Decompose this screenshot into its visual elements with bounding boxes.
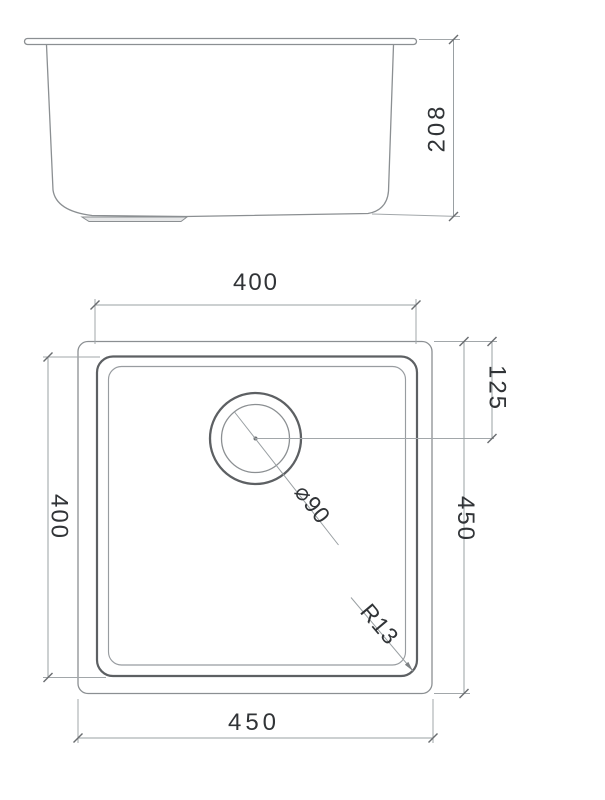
drain-offset-dimension: 125	[483, 337, 510, 443]
drain-offset-dimension-label: 125	[483, 365, 510, 411]
side-view: 208	[25, 35, 461, 222]
drain-diameter-label: ⌀90	[289, 479, 336, 528]
corner-radius-callout: R13	[351, 598, 413, 672]
plan-view: ⌀90 R13 400	[43, 269, 510, 743]
drain-diameter-leader	[235, 412, 339, 545]
corner-radius-label: R13	[355, 599, 404, 650]
rim-profile	[25, 39, 417, 45]
sink-dimension-drawing: 208 ⌀90 R13	[0, 0, 605, 800]
drain: ⌀90	[210, 393, 494, 545]
height-dimension: 208	[372, 35, 460, 221]
height-dim-extension-bottom	[372, 214, 460, 217]
overall-depth-dimension-label: 450	[452, 496, 479, 542]
bowl-width-dimension: 400	[91, 269, 421, 344]
bowl-width-dimension-label: 400	[233, 269, 279, 296]
overall-width-dimension-label: 450	[228, 709, 280, 736]
overall-width-dimension: 450	[74, 699, 438, 743]
basin-profile	[47, 45, 394, 217]
drain-pad-profile	[82, 217, 187, 222]
height-dimension-label: 208	[424, 103, 451, 152]
technical-drawing-page: 208 ⌀90 R13	[0, 0, 605, 800]
bowl-depth-dimension-label: 400	[45, 494, 72, 540]
